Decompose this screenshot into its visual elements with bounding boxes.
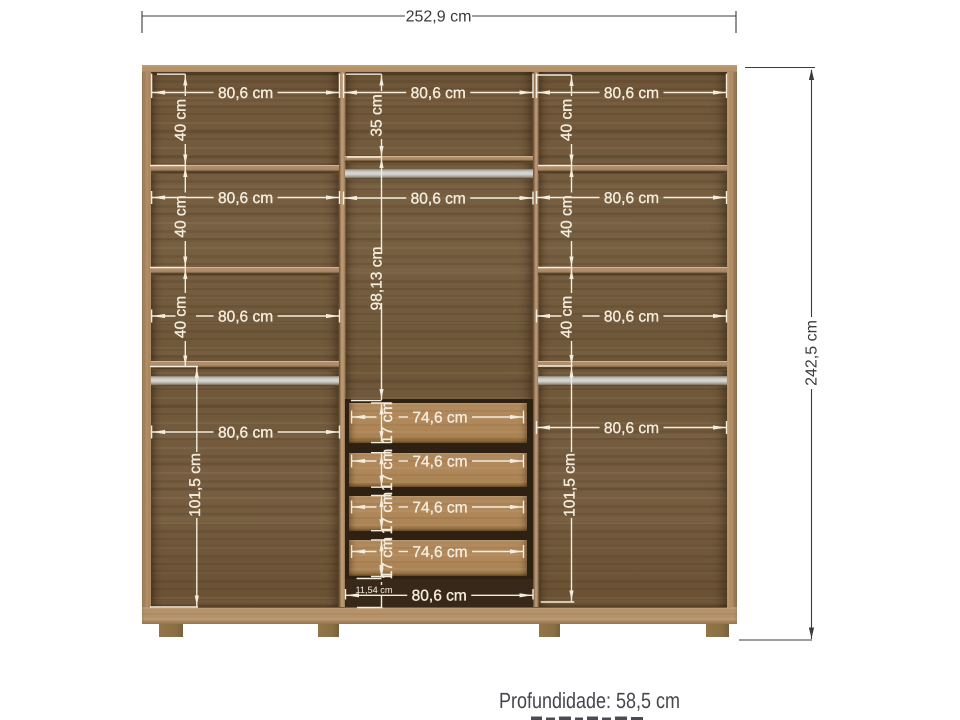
svg-text:Profundidade: 58,5 cm: Profundidade: 58,5 cm [499,688,680,713]
svg-text:80,6 cm: 80,6 cm [411,85,466,102]
svg-text:80,6 cm: 80,6 cm [218,308,273,325]
svg-text:80,6 cm: 80,6 cm [604,85,659,102]
svg-text:252,9 cm: 252,9 cm [406,9,472,26]
svg-text:80,6 cm: 80,6 cm [604,420,659,437]
svg-text:74,6 cm: 74,6 cm [412,409,467,426]
svg-text:40 cm: 40 cm [559,195,576,237]
svg-text:40 cm: 40 cm [559,99,576,141]
svg-text:80,6 cm: 80,6 cm [604,190,659,207]
svg-text:40 cm: 40 cm [172,195,189,237]
svg-text:74,6 cm: 74,6 cm [412,453,467,470]
svg-text:11,54 cm: 11,54 cm [355,585,392,595]
svg-text:80,6 cm: 80,6 cm [412,588,467,605]
svg-text:17 cm: 17 cm [379,492,396,534]
svg-text:40 cm: 40 cm [172,99,189,141]
svg-text:74,6 cm: 74,6 cm [412,499,467,516]
svg-text:80,6 cm: 80,6 cm [218,424,273,441]
svg-text:74,6 cm: 74,6 cm [412,544,467,561]
svg-text:98,13 cm: 98,13 cm [369,247,386,311]
svg-text:242,5 cm: 242,5 cm [804,320,821,386]
svg-text:101,5 cm: 101,5 cm [562,453,579,517]
svg-text:80,6 cm: 80,6 cm [218,190,273,207]
svg-text:80,6 cm: 80,6 cm [218,85,273,102]
svg-text:80,6 cm: 80,6 cm [411,190,466,207]
svg-text:40 cm: 40 cm [172,296,189,338]
svg-text:17 cm: 17 cm [379,402,396,444]
svg-text:40 cm: 40 cm [559,296,576,338]
svg-text:101,5 cm: 101,5 cm [187,453,204,517]
svg-text:17 cm: 17 cm [379,449,396,491]
svg-text:80,6 cm: 80,6 cm [604,308,659,325]
svg-text:35 cm: 35 cm [369,94,386,136]
